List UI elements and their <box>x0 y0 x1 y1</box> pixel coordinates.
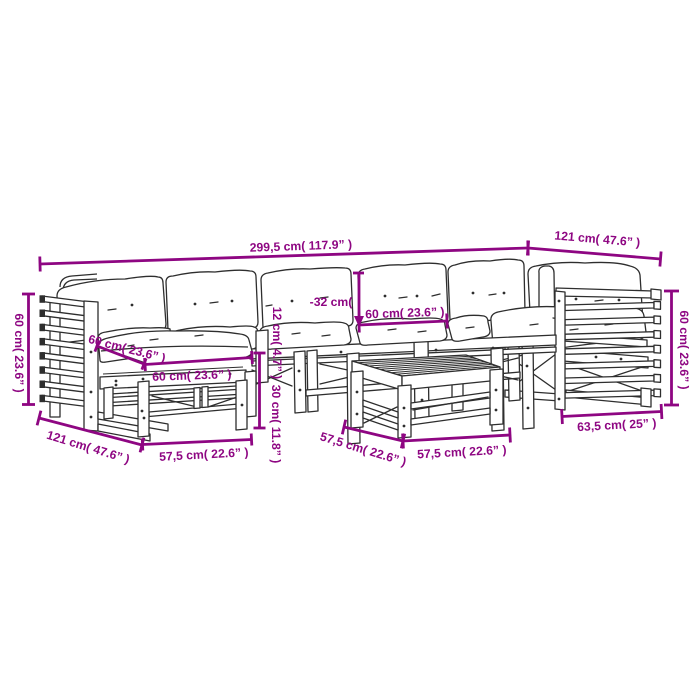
svg-text:-32 cm(: -32 cm( <box>310 295 354 309</box>
svg-text:12 cm( 4.7” ): 12 cm( 4.7” ) <box>270 307 284 379</box>
svg-text:60 cm( 23.6” ): 60 cm( 23.6” ) <box>12 313 26 392</box>
svg-text:30 cm( 11.8” ): 30 cm( 11.8” ) <box>269 385 283 464</box>
svg-text:60 cm( 23.6” ): 60 cm( 23.6” ) <box>152 367 232 384</box>
svg-text:60 cm( 23.6” ): 60 cm( 23.6” ) <box>365 305 445 322</box>
svg-text:60 cm( 23.6” ): 60 cm( 23.6” ) <box>677 310 691 389</box>
